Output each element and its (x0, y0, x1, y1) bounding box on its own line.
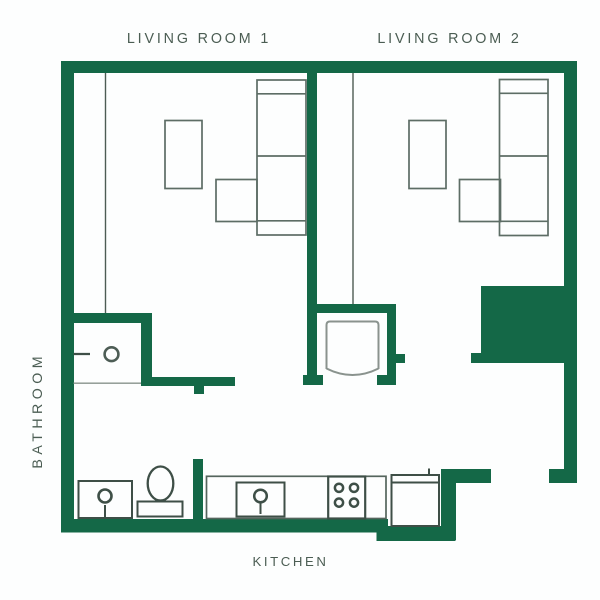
svg-text:LIVING ROOM 2: LIVING ROOM 2 (377, 31, 521, 47)
svg-text:BATHROOM: BATHROOM (30, 352, 46, 469)
svg-text:LIVING ROOM 1: LIVING ROOM 1 (127, 31, 271, 47)
svg-text:KITCHEN: KITCHEN (252, 554, 328, 569)
